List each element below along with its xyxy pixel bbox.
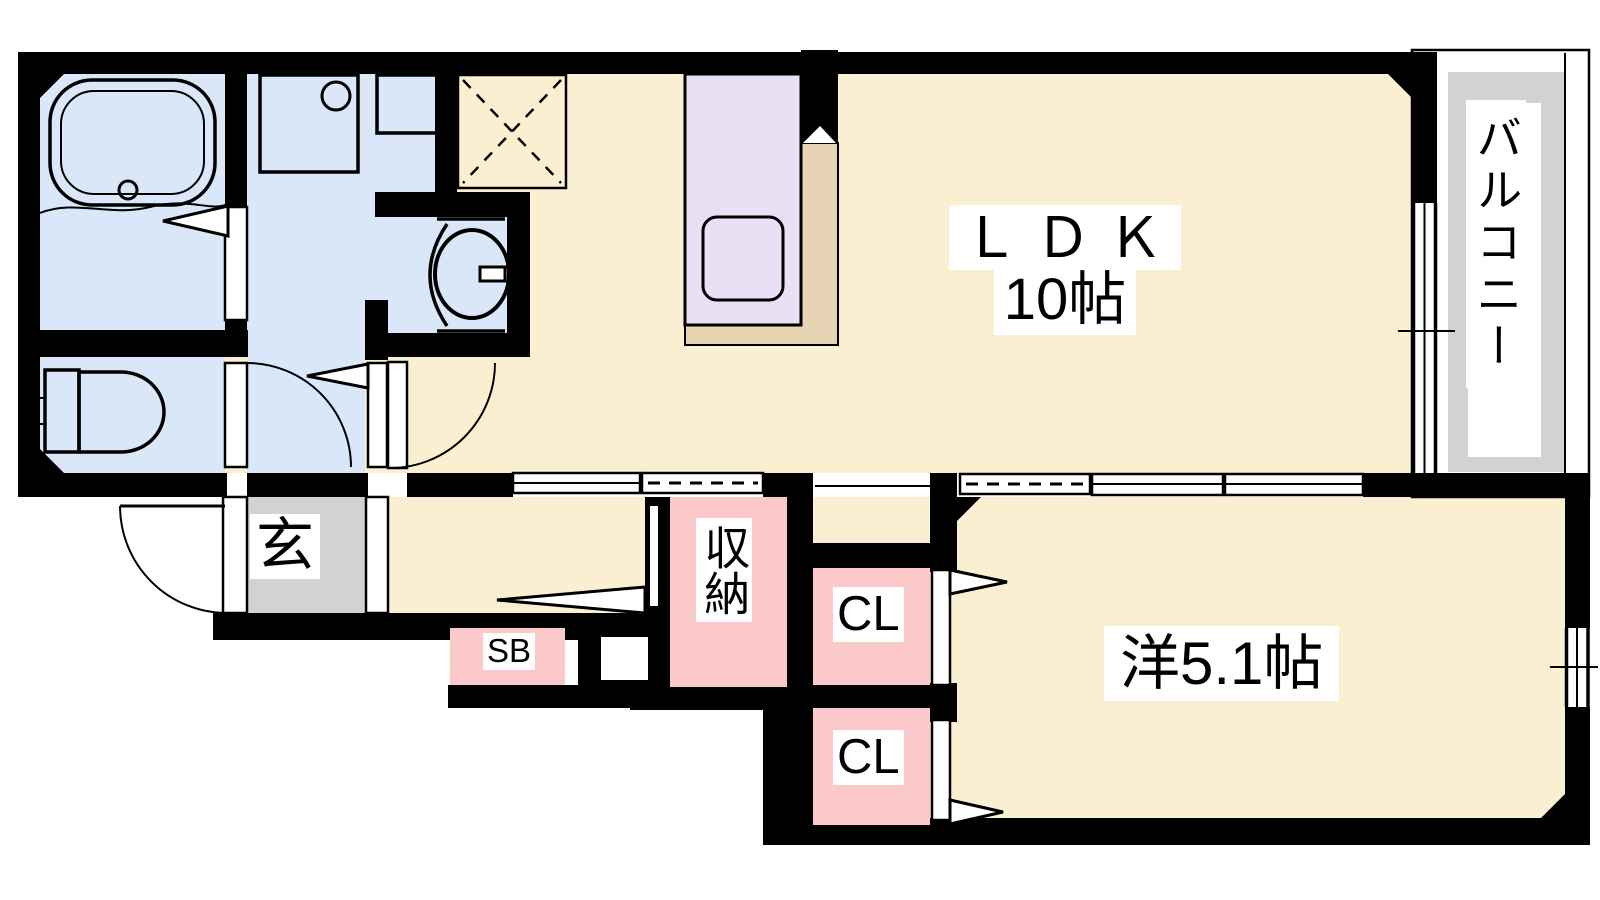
sliding-door-hall-track [642,473,763,493]
label-closet-lower: CL [833,730,904,785]
sliding-door-bedroom-track [960,474,1090,494]
faucet-icon [480,267,505,281]
room-label-western-room: 洋5.1帖 [1104,626,1339,701]
bathroom-floor [40,74,228,330]
room-label-balcony: バルコニー [1466,100,1526,460]
hall-opening-jamb [366,497,388,613]
kitchen [685,50,838,345]
kitchen-sink-icon [703,217,783,300]
label-shoe-box: SB [483,633,535,670]
room-label-entrance: 玄 [250,514,320,579]
label-closet-upper: CL [833,587,904,642]
floor-plan: ＬＤＫ 10帖 洋5.1帖 バルコニー 玄 SB 収納 CL CL [0,0,1600,900]
entrance-door-jamb [223,497,247,613]
ldk-label-line1: ＬＤＫ [949,205,1181,270]
washroom-vestibule-floor [247,333,365,475]
floor-plan-drawing [0,0,1600,900]
entrance-door-icon [120,506,227,613]
refrigerator-space-icon [458,75,566,188]
ldk-label-line2: 10帖 [994,270,1137,335]
pipe-space-niche [601,637,648,680]
room-label-ldk: ＬＤＫ 10帖 [930,205,1200,335]
room-label-storage: 収納 [696,518,752,668]
